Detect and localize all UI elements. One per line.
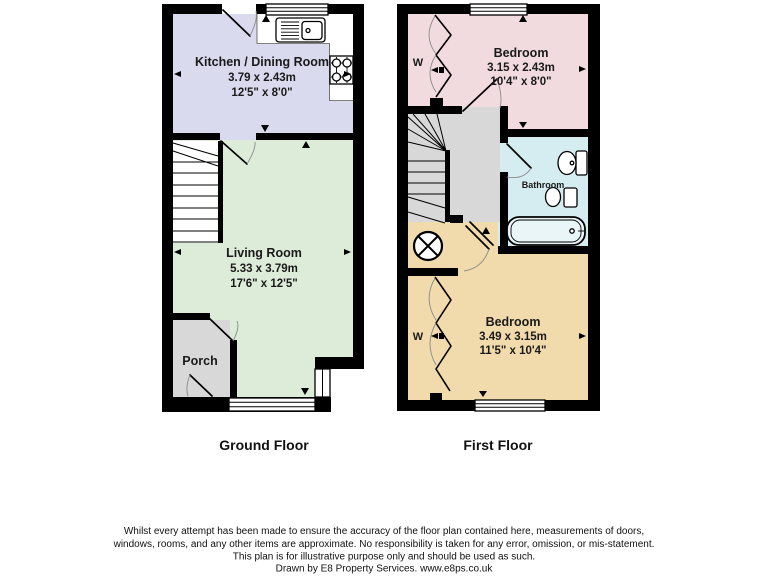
disclaimer-line-1: Whilst every attempt has been made to en… [124,526,644,537]
bedroom1-wardrobe-label: W [413,57,424,69]
ground-floor-label: Ground Floor [219,437,309,453]
cylinder-symbol [414,232,442,260]
kitchen-window [266,4,328,15]
bedroom2-metric: 3.49 x 3.15m [479,331,547,343]
ground-floor-plan: Kitchen / Dining Room 3.79 x 2.43m 12'5"… [162,4,364,412]
disclaimer-line-2: windows, rooms, and any other items are … [113,539,655,550]
hob [330,56,353,84]
bathroom-name: Bathroom [522,180,565,190]
bedroom1-name: Bedroom [494,46,549,60]
bedroom1-metric: 3.15 x 2.43m [487,62,555,74]
porch-name: Porch [182,354,217,368]
kitchen-sink [276,18,325,42]
bedroom1-window [470,4,527,15]
bedroom2-imperial: 11'5" x 10'4" [480,345,547,357]
disclaimer-line-4: Drawn by E8 Property Services. www.e8ps.… [276,564,494,575]
first-floor-label: First Floor [463,437,533,453]
kitchen-imperial: 12'5" x 8'0" [231,87,292,99]
bathtub [507,217,585,245]
bedroom1-imperial: 10'4" x 8'0" [490,76,551,88]
floorplan-page: Kitchen / Dining Room 3.79 x 2.43m 12'5"… [0,0,768,576]
bathroom-basin [558,151,587,175]
bedroom2-window [475,400,545,411]
disclaimer-line-3: This plan is for illustrative purpose on… [233,552,535,563]
disclaimer: Whilst every attempt has been made to en… [113,526,655,575]
living-name: Living Room [226,246,302,260]
kitchen-name: Kitchen / Dining Room [195,55,329,69]
floorplan-drawing: Kitchen / Dining Room 3.79 x 2.43m 12'5"… [0,0,768,576]
bedroom2-name: Bedroom [486,315,541,329]
living-room-window [229,398,315,411]
living-imperial: 17'6" x 12'5" [230,278,298,290]
kitchen-metric: 3.79 x 2.43m [228,72,296,84]
bedroom2-wardrobe-label: W [413,331,424,343]
living-metric: 5.33 x 3.79m [230,263,298,275]
staircase-area [173,141,218,243]
first-floor-plan: Bedroom 3.15 x 2.43m 10'4" x 8'0" W Bath… [397,4,600,411]
